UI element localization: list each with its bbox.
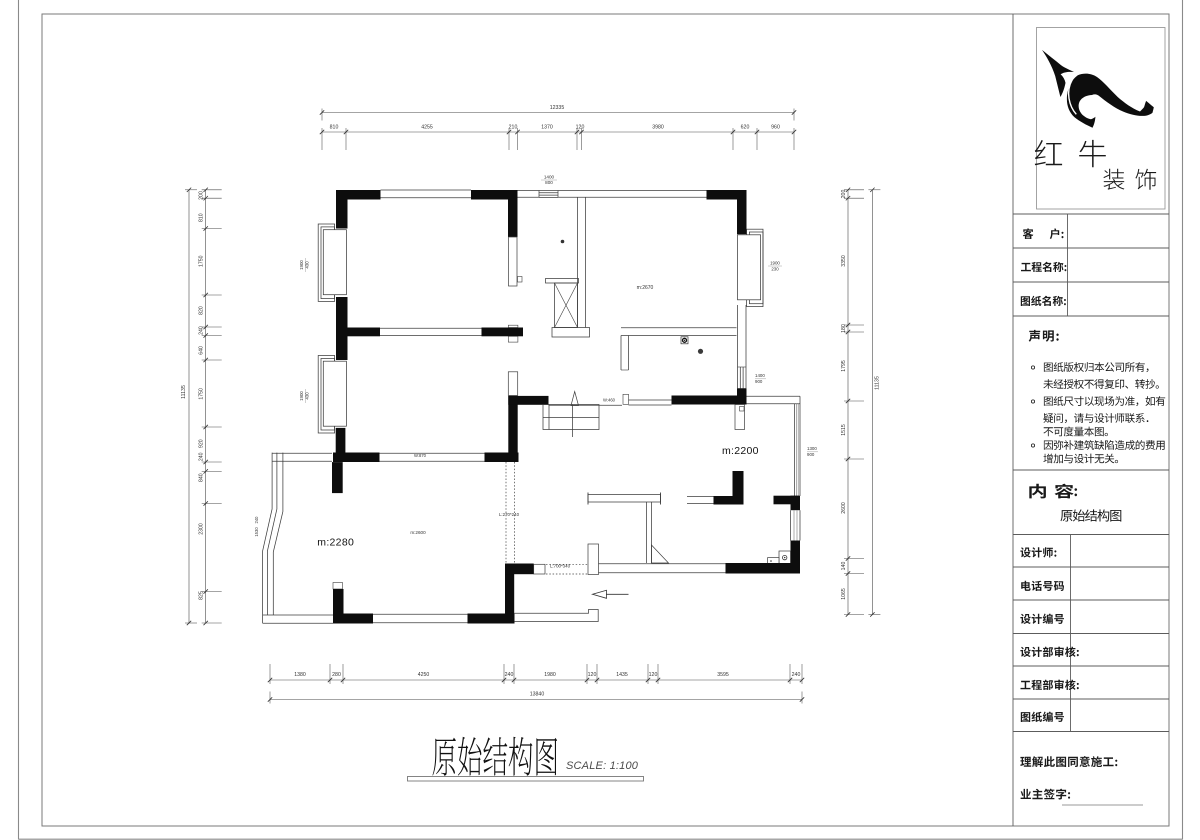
svg-text:120: 120 [649, 672, 658, 678]
svg-text:1900: 1900 [770, 261, 780, 266]
svg-text:3595: 3595 [717, 672, 729, 678]
svg-text:1795: 1795 [841, 360, 847, 372]
svg-text:800: 800 [545, 180, 553, 185]
svg-text:900: 900 [755, 379, 763, 384]
svg-text:200: 200 [841, 190, 847, 199]
svg-text:1980: 1980 [544, 672, 556, 678]
svg-text:L:270*240: L:270*240 [499, 512, 520, 517]
svg-text:1900: 1900 [299, 391, 304, 401]
svg-text:1750: 1750 [199, 255, 205, 267]
svg-text:1530: 1530 [254, 527, 259, 537]
svg-text:m:2200: m:2200 [722, 445, 759, 457]
svg-text:11135: 11135 [181, 385, 187, 399]
svg-text:620: 620 [741, 125, 750, 131]
svg-text:m:2670: m:2670 [637, 285, 654, 291]
svg-text:1380: 1380 [294, 672, 306, 678]
svg-text:920: 920 [199, 439, 205, 448]
svg-text:12335: 12335 [550, 105, 565, 111]
svg-text:810: 810 [330, 125, 339, 131]
svg-text:3980: 3980 [652, 125, 664, 131]
svg-text:1370: 1370 [541, 125, 553, 131]
svg-text:1400: 1400 [544, 175, 555, 180]
svg-text:L:700*340: L:700*340 [550, 564, 571, 569]
svg-text:13840: 13840 [530, 692, 545, 698]
svg-text:960: 960 [771, 125, 780, 131]
svg-text:180: 180 [841, 324, 847, 333]
svg-text:1900: 1900 [299, 260, 304, 270]
svg-text:820: 820 [199, 306, 205, 315]
svg-text:1515: 1515 [841, 424, 847, 436]
svg-text:11135: 11135 [875, 376, 881, 390]
svg-text:240: 240 [505, 672, 514, 678]
svg-text:840: 840 [199, 473, 205, 482]
svg-text:1400: 1400 [755, 373, 765, 378]
svg-text:SCALE: 1:100: SCALE: 1:100 [566, 760, 639, 772]
svg-text:280: 280 [332, 672, 341, 678]
svg-text:825: 825 [199, 591, 205, 600]
svg-text:200: 200 [199, 191, 205, 200]
svg-text:1435: 1435 [616, 672, 628, 678]
svg-text:2300: 2300 [199, 523, 205, 535]
svg-text:W:460: W:460 [603, 398, 616, 403]
svg-text:2600: 2600 [841, 502, 847, 514]
svg-text:230: 230 [771, 267, 779, 272]
svg-text:210: 210 [509, 125, 518, 131]
svg-text:240: 240 [792, 672, 801, 678]
svg-text:1300: 1300 [807, 446, 817, 451]
svg-text:640: 640 [199, 346, 205, 355]
svg-text:120: 120 [576, 125, 585, 131]
svg-text:1750: 1750 [199, 388, 205, 400]
svg-text:810: 810 [199, 213, 205, 222]
svg-text:1065: 1065 [841, 588, 847, 600]
svg-text:240: 240 [199, 326, 205, 335]
svg-text:900: 900 [807, 452, 815, 457]
svg-text:4250: 4250 [418, 672, 430, 678]
svg-text:m:2600: m:2600 [410, 530, 426, 535]
svg-text:140: 140 [841, 562, 847, 571]
svg-text:m:2280: m:2280 [317, 537, 354, 549]
svg-text:4255: 4255 [421, 125, 433, 131]
svg-text:240: 240 [199, 452, 205, 461]
svg-text:120: 120 [588, 672, 597, 678]
svg-text:240: 240 [254, 516, 259, 524]
svg-text:W:870: W:870 [414, 453, 427, 458]
svg-text:3350: 3350 [841, 255, 847, 267]
